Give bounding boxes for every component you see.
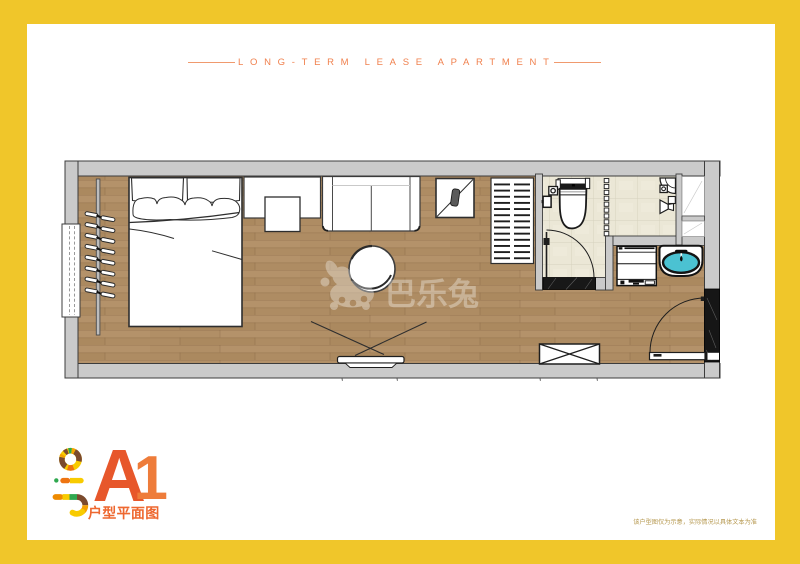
svg-text:巴乐兔: 巴乐兔 [385,277,480,312]
